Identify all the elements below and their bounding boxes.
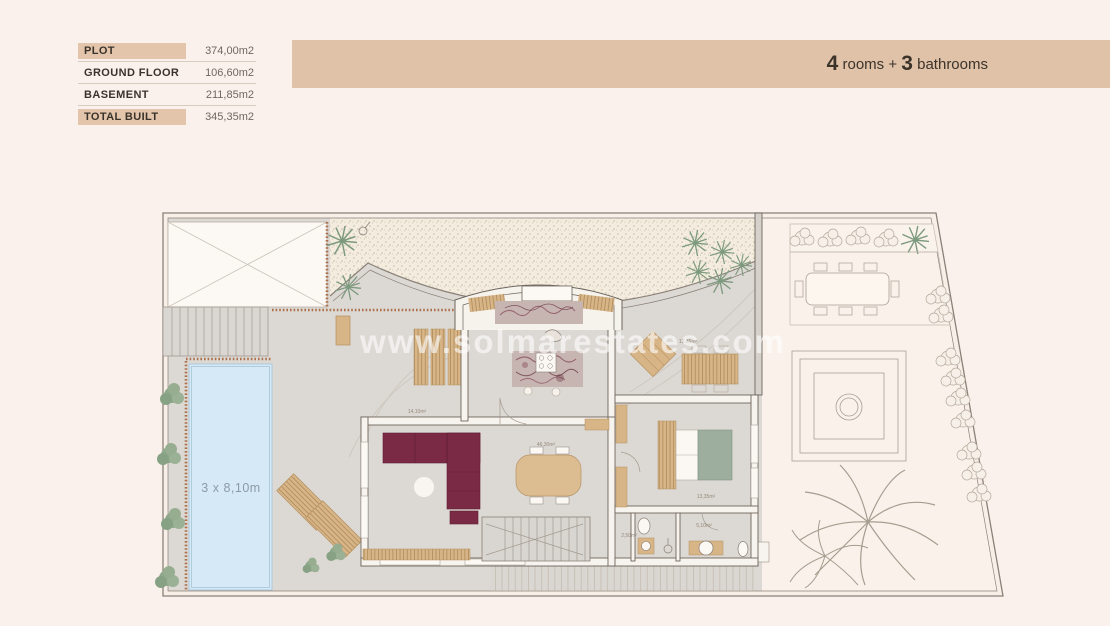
headboard — [658, 421, 676, 489]
interior-stairs — [482, 517, 590, 561]
bed — [698, 430, 732, 480]
pool: 3 x 8,10m — [189, 364, 272, 590]
wardrobe — [616, 405, 627, 443]
skylight — [522, 286, 572, 301]
page: PLOT 374,00m2 GROUND FLOOR 106,60m2 BASE… — [0, 0, 1110, 626]
living-area-label: 46,30m² — [537, 442, 556, 448]
bedroom-area-label: 13,35m² — [697, 494, 716, 500]
pool-size-label: 3 x 8,10m — [201, 481, 260, 495]
toilet — [738, 542, 748, 557]
toilet — [638, 518, 650, 534]
floor-plan: 3 x 8,10m — [0, 0, 1110, 626]
gate-post — [336, 316, 350, 345]
watermark: www.solmarestates.com — [359, 323, 786, 360]
bath-main-area-label: 5,10m² — [696, 523, 712, 529]
bath-small-area-label: 2,50m² — [621, 533, 637, 539]
ottoman — [450, 511, 478, 524]
garden-dining-table — [806, 273, 889, 305]
kitchen-counter — [495, 301, 583, 324]
terrace-area-label: 14,10m² — [408, 409, 427, 415]
bench — [363, 549, 470, 560]
outdoor-stairs — [163, 307, 268, 356]
dining-table — [516, 455, 581, 496]
coffee-table — [414, 477, 434, 497]
parking-area — [168, 222, 327, 307]
